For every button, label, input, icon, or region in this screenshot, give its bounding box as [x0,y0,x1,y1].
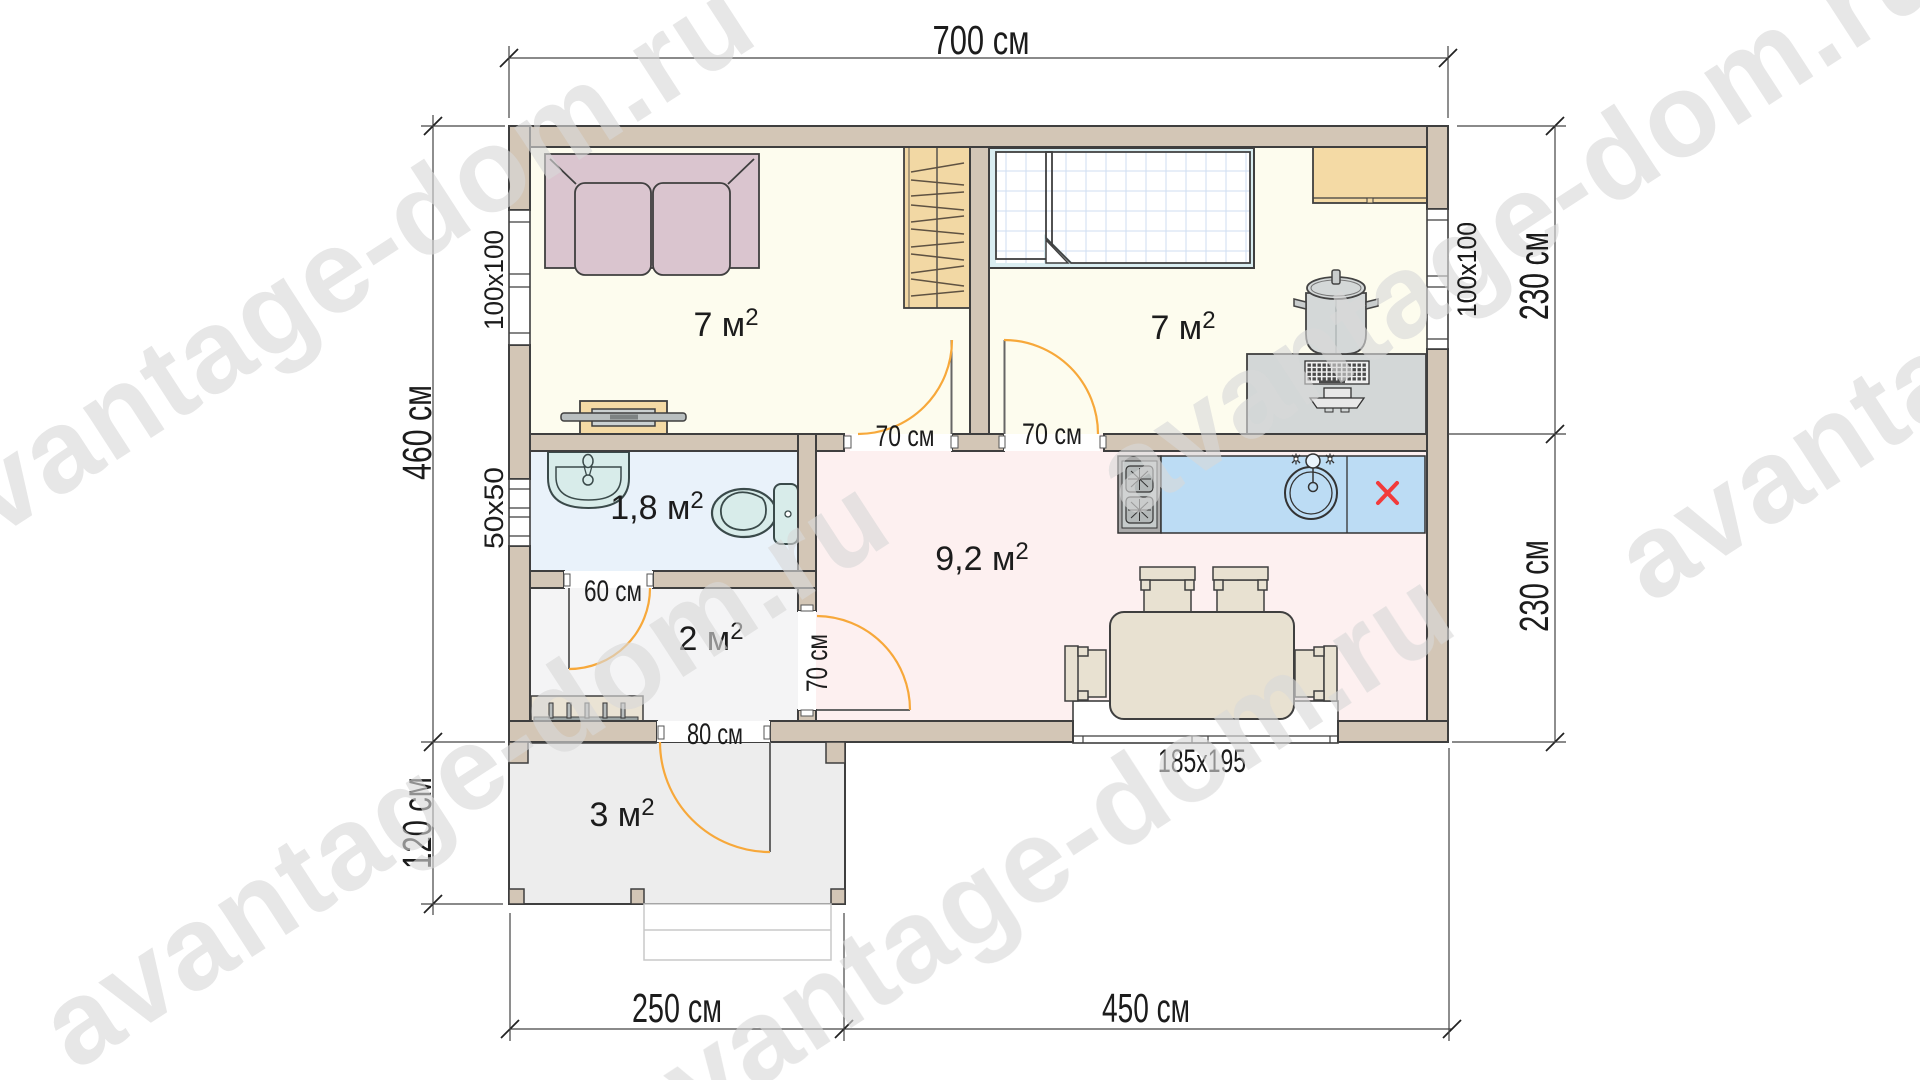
svg-text:70 см: 70 см [801,634,834,692]
svg-text:70 см: 70 см [876,420,935,453]
svg-text:700 см: 700 см [933,17,1030,63]
svg-text:450 см: 450 см [1102,985,1190,1031]
svg-text:230 см: 230 см [1511,540,1557,632]
svg-text:1,8 м2: 1,8 м2 [610,487,703,527]
svg-text:230 см: 230 см [1511,232,1557,320]
svg-text:50x50: 50x50 [479,467,509,549]
svg-text:100x100: 100x100 [1452,222,1482,317]
svg-text:460 см: 460 см [394,385,440,480]
svg-text:70 см: 70 см [1022,418,1082,451]
svg-text:9,2 м2: 9,2 м2 [935,538,1028,578]
svg-text:80 см: 80 см [687,718,743,751]
